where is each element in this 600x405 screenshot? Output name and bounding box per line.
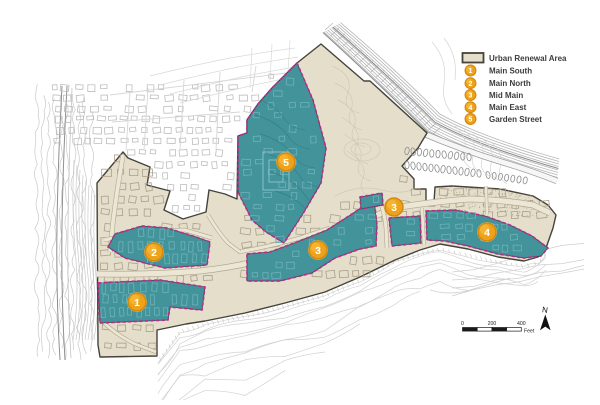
svg-text:Feet: Feet <box>524 329 535 335</box>
svg-text:3: 3 <box>469 93 473 100</box>
svg-text:2: 2 <box>151 247 157 259</box>
svg-text:4: 4 <box>484 227 490 239</box>
svg-text:1: 1 <box>134 297 140 309</box>
svg-text:200: 200 <box>488 321 497 327</box>
svg-text:4: 4 <box>469 105 473 112</box>
svg-text:2: 2 <box>469 81 473 88</box>
svg-text:400: 400 <box>517 321 526 327</box>
svg-text:5: 5 <box>283 157 289 169</box>
svg-text:0: 0 <box>461 321 464 327</box>
svg-text:Main North: Main North <box>489 79 531 88</box>
svg-text:Garden Street: Garden Street <box>489 115 542 124</box>
svg-text:3: 3 <box>391 202 397 214</box>
svg-text:Main South: Main South <box>489 66 532 75</box>
svg-text:Mid Main: Mid Main <box>489 91 523 100</box>
svg-text:Main East: Main East <box>489 103 527 112</box>
svg-text:1: 1 <box>469 68 473 75</box>
svg-text:5: 5 <box>469 117 473 124</box>
svg-text:Urban Renewal Area: Urban Renewal Area <box>489 54 567 63</box>
svg-text:3: 3 <box>315 245 321 257</box>
